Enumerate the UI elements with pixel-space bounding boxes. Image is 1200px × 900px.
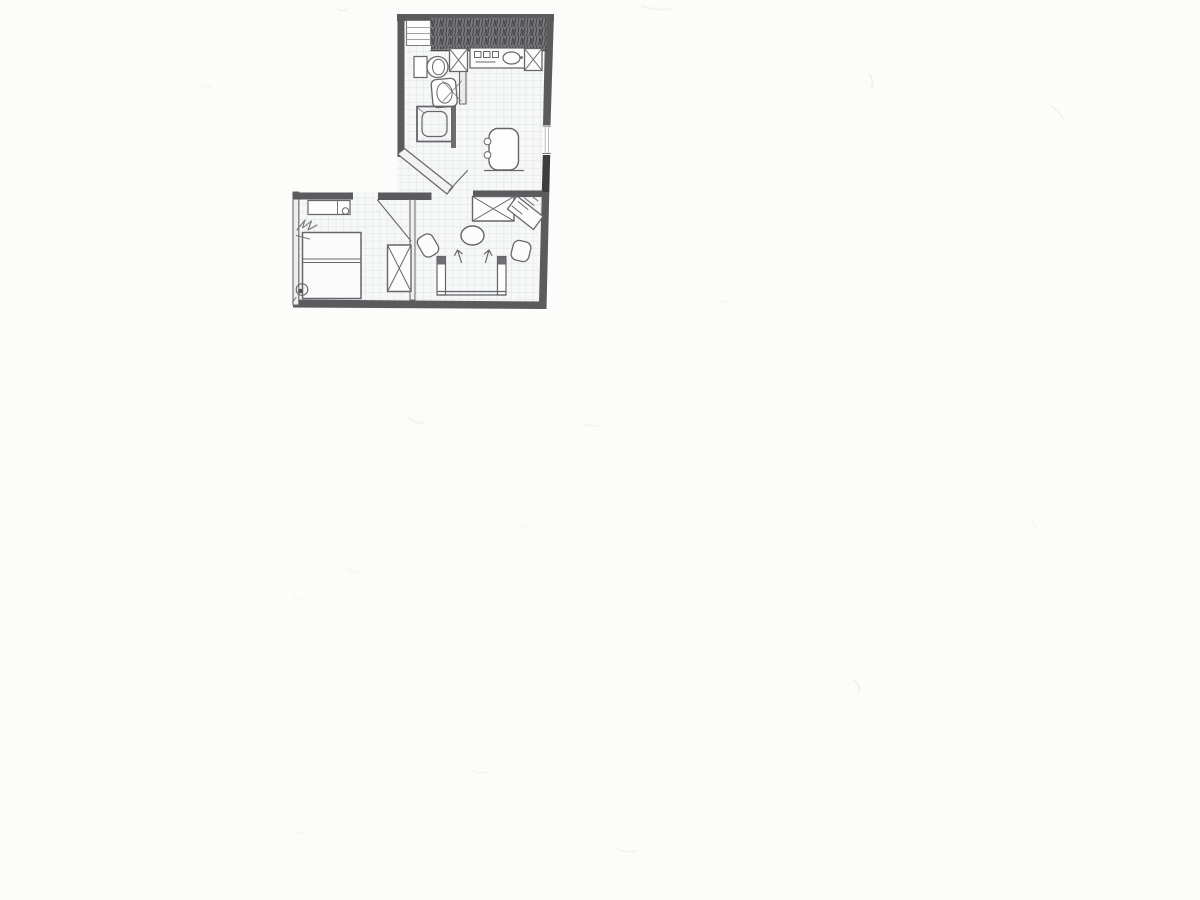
scan-smudge xyxy=(854,680,859,693)
floor-plan-svg xyxy=(0,0,1200,900)
sofa-left-knob xyxy=(438,257,446,265)
kitchen-sink xyxy=(503,52,520,64)
scan-smudge xyxy=(642,6,672,10)
scan-smudge xyxy=(720,300,730,302)
bedroom-top-wall-right xyxy=(378,193,432,201)
bedroom-top-wall-left xyxy=(293,193,353,200)
scan-smudge xyxy=(1032,520,1036,530)
scan-smudge xyxy=(582,424,600,426)
scan-smudge xyxy=(618,849,636,852)
scan-smudge xyxy=(293,831,302,833)
right-wall-window xyxy=(543,125,551,155)
sink-faucet xyxy=(520,56,523,59)
scan-smudge xyxy=(203,86,211,87)
bathroom-left-wall xyxy=(398,14,405,157)
scan-smudge xyxy=(869,74,873,88)
scan-smudge xyxy=(293,596,300,598)
scan-smudge xyxy=(348,569,357,572)
right-wall-pier xyxy=(542,155,550,192)
sofa-right-knob xyxy=(498,257,506,265)
scan-smudge xyxy=(471,770,487,773)
armchair-knob-bottom xyxy=(484,152,491,159)
scan-smudge xyxy=(338,9,346,11)
scan-smudge xyxy=(1051,106,1063,118)
corner-dot-mark xyxy=(298,289,303,294)
scanned-floorplan-page xyxy=(0,0,1200,900)
scan-smudge xyxy=(522,526,532,528)
hatched-wall-band xyxy=(431,18,547,50)
armchair xyxy=(489,129,519,171)
double-bed xyxy=(303,233,362,299)
round-table xyxy=(461,226,484,245)
closet-box xyxy=(407,21,431,46)
armchair-knob-top xyxy=(484,138,491,145)
scan-smudge xyxy=(409,418,423,423)
toilet-tank xyxy=(414,57,427,78)
dresser-knob xyxy=(342,208,348,214)
